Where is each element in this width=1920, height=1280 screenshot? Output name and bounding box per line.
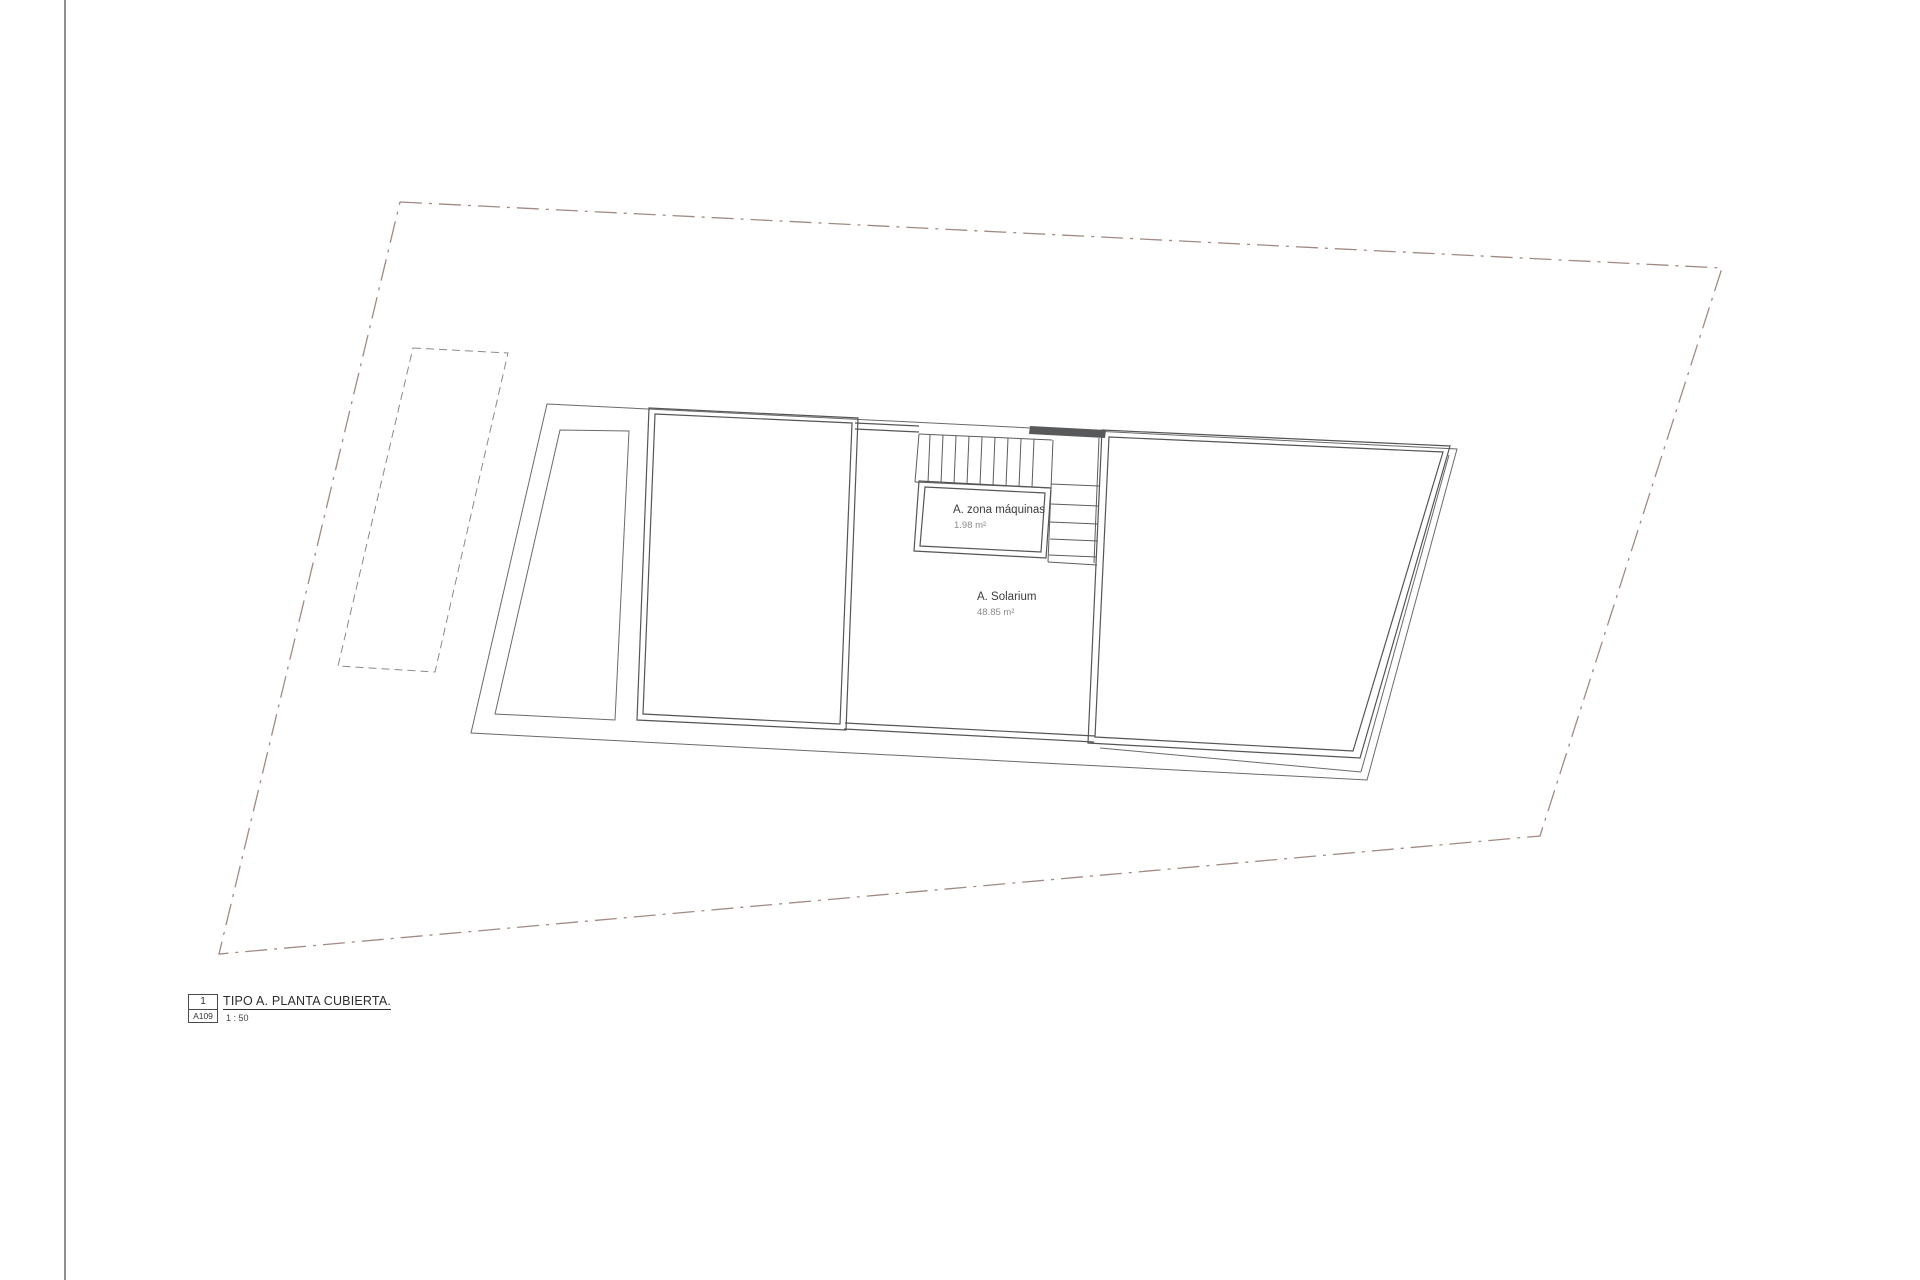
- building-outline: [471, 404, 1457, 780]
- solarium-name-label: A. Solarium: [977, 591, 1036, 603]
- solarium-top-wall-inner: [855, 429, 919, 432]
- solarium-walls: [844, 423, 1095, 742]
- stair-riser-line: [928, 435, 930, 483]
- title-block: 1 A109 TIPO A. PLANTA CUBIERTA. 1 : 50: [188, 994, 391, 1023]
- stair-upper-run: [915, 434, 1052, 488]
- stair-upper-run-top-edge: [919, 434, 1052, 440]
- green-roof-left: [643, 414, 852, 724]
- solarium-bottom-wall-inner: [844, 729, 1094, 742]
- stair-tread-line: [1051, 484, 1099, 486]
- stair-riser-line: [993, 437, 995, 485]
- stair-riser-line: [980, 437, 982, 485]
- stair-tread-line: [1051, 504, 1099, 506]
- stair-riser-line: [1006, 438, 1008, 486]
- solarium-top-wall-outer: [855, 423, 919, 426]
- title-block-text: TIPO A. PLANTA CUBIERTA. 1 : 50: [223, 994, 391, 1023]
- building-inner-eave-line-right: [1361, 455, 1449, 772]
- stair-vertical-run-bottom-edge: [1048, 562, 1097, 565]
- stair-treads: [1049, 484, 1099, 557]
- floor-plan-drawing: A. zona máquinas 1.98 m² A. Solarium 48.…: [0, 0, 1920, 1280]
- stair-tread-line: [1050, 522, 1098, 524]
- planter-strip: [495, 430, 629, 720]
- green-roof-right-wall: [1088, 430, 1450, 758]
- parcel-boundary-line: [219, 202, 1722, 954]
- drawing-title: TIPO A. PLANTA CUBIERTA.: [223, 994, 391, 1010]
- stair-upper-run-left-edge: [915, 434, 919, 482]
- detail-number: 1: [189, 995, 217, 1010]
- solarium-area-label: 48.85 m²: [977, 607, 1015, 618]
- stair-vertical-run: [1048, 438, 1099, 565]
- detail-reference-box: 1 A109: [188, 994, 218, 1023]
- stair-riser-line: [1019, 439, 1021, 487]
- machine-room-name-label: A. zona máquinas: [953, 504, 1045, 516]
- drawing-scale: 1 : 50: [226, 1013, 391, 1023]
- dashed-plot-outline: [338, 348, 508, 672]
- stair-riser-line: [941, 435, 943, 483]
- stair-riser-line: [967, 436, 969, 484]
- machine-room-area-label: 1.98 m²: [954, 520, 986, 531]
- dark-wall-bar: [1029, 426, 1106, 438]
- stair-riser-line: [954, 436, 956, 484]
- green-roof-left-wall: [637, 408, 858, 730]
- green-roof-right: [1095, 437, 1443, 751]
- sheet-number: A109: [189, 1010, 217, 1022]
- stair-riser-line: [1032, 439, 1034, 487]
- stair-risers: [928, 435, 1034, 487]
- stair-tread-line: [1050, 539, 1098, 541]
- solarium-bottom-wall-outer: [845, 723, 1095, 736]
- stair-tread-line: [1049, 555, 1097, 557]
